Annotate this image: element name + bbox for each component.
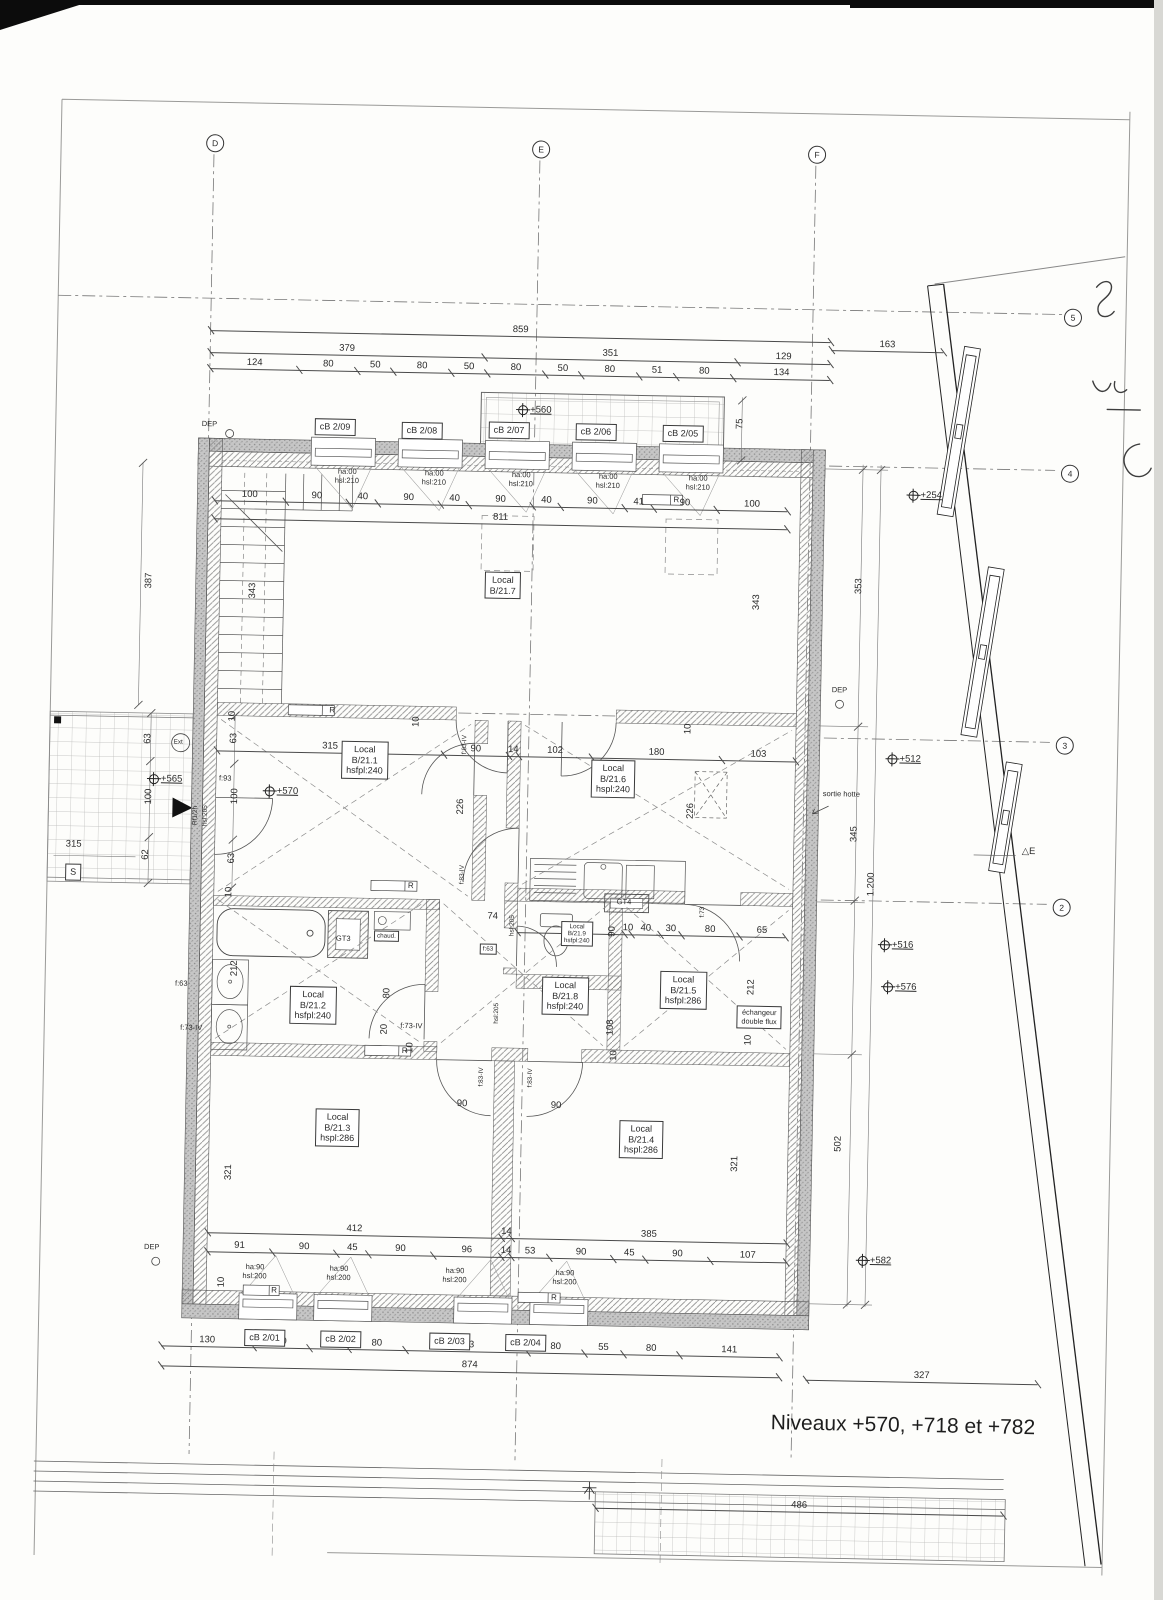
dim-90-swing-left: 90 [457, 1099, 468, 1109]
drawing-area: D E F 5 4 3 2 859 379351129 124805080508… [0, 0, 1163, 1600]
dim-20-door: 20 [378, 1007, 390, 1051]
level-icon [880, 940, 890, 950]
window-ann-hsl-1: hsl:210 [335, 477, 359, 486]
dim-value: 91 [234, 1240, 245, 1251]
dim-343-stair: 343 [247, 568, 259, 612]
dim-value: 874 [462, 1359, 478, 1370]
dim-value: 90 [587, 495, 598, 506]
handwriting-scribble [1091, 281, 1155, 476]
dim-value: 100 [242, 489, 258, 500]
dim-value: 107 [740, 1249, 756, 1260]
window-tag-cb205: cB 2/05 [663, 425, 704, 442]
dim-10-3: 10 [682, 707, 694, 751]
door-label-f93: f:93 [219, 774, 232, 783]
door-label-entry-hsl: hsl:205 [201, 794, 209, 838]
window-tag-cb202: cB 2/02 [320, 1330, 361, 1347]
level-icon [858, 1255, 868, 1265]
dim-value: 80 [550, 1341, 561, 1352]
heat-exchanger-label: échangeurdouble flux [736, 1005, 782, 1029]
door-label-entry-rating: Rf1/2h [191, 793, 199, 837]
room-label-b211: LocalB/21.1hsfpl:240 [341, 741, 388, 779]
dim-value: 80 [511, 362, 522, 373]
window-ann-hsl-b4: hsl:200 [552, 1278, 576, 1287]
dim-321-left: 321 [223, 1150, 235, 1194]
dim-value: 41 [633, 496, 644, 507]
dim-75: 75 [734, 402, 746, 446]
window-tag-cb201: cB 2/01 [244, 1329, 285, 1346]
level-marker-560: +560 [518, 404, 552, 416]
dim-value: 96 [461, 1244, 472, 1255]
dim-value: 80 [417, 360, 428, 371]
dim-353: 353 [853, 564, 865, 608]
dim-502: 502 [832, 1122, 844, 1166]
dim-value: 180 [649, 747, 665, 758]
dim-value: 90 [576, 1246, 587, 1257]
levels-note: Niveaux +570, +718 et +782 [770, 1411, 1035, 1440]
dim-10-4: 10 [223, 870, 235, 914]
dim-value: 40 [449, 493, 460, 504]
window-ann-hsl-4: hsl:210 [596, 482, 620, 491]
dim-value: 50 [370, 359, 381, 370]
dim-10-1: 10 [226, 694, 238, 738]
door-label-f73iv-1: f:73-IV [400, 1022, 422, 1031]
dim-value: 65 [757, 925, 768, 936]
dim-value: 315 [322, 740, 338, 751]
level-marker-576: +576 [883, 981, 917, 993]
terrace-left [47, 711, 193, 884]
dim-value: 53 [525, 1245, 536, 1256]
scanned-floor-plan-sheet: D E F 5 4 3 2 859 379351129 124805080508… [0, 0, 1163, 1600]
level-marker-582: +582 [858, 1255, 892, 1267]
door-label-hsl205-1: hsl:205 [508, 904, 516, 948]
dim-value: 141 [721, 1344, 737, 1355]
dim-value: 134 [773, 367, 789, 378]
dim-value: 90 [672, 1248, 683, 1259]
window-tag-cb207: cB 2/07 [489, 422, 530, 439]
dim-value: 412 [346, 1223, 362, 1234]
dim-value: 486 [791, 1500, 807, 1511]
dim-value: 40 [541, 495, 552, 506]
radiator-letter-4: R [402, 1047, 408, 1056]
level-icon [149, 774, 159, 784]
window-ann-hsl-b3: hsl:200 [442, 1276, 466, 1285]
dim-value: 130 [199, 1334, 215, 1345]
level-marker-254: +254 [908, 490, 942, 502]
dep-label-top: DEP [202, 420, 218, 429]
dim-value: 379 [339, 343, 355, 354]
level-icon [887, 754, 897, 764]
dim-62: 62 [140, 832, 152, 876]
room-label-b216: LocalB/21.6hspl:240 [591, 760, 636, 798]
window-tag-cb206: cB 2/06 [576, 423, 617, 440]
dim-value: 80 [371, 1337, 382, 1348]
east-marker: △E [1022, 846, 1036, 857]
dim-value: 90 [680, 497, 691, 508]
door-label-f83-4: f:83-IV [526, 1056, 534, 1100]
level-icon [518, 405, 528, 415]
dim-226-left: 226 [455, 784, 467, 828]
window-tag-cb208: cB 2/08 [402, 422, 443, 439]
door-label-f63-2: f:63 [175, 980, 188, 989]
room-label-b218: LocalB/21.8hsfpl:240 [542, 977, 589, 1015]
dim-value: 90 [311, 490, 322, 501]
window-ann-hsl-b2: hsl:200 [326, 1274, 350, 1283]
dim-90-kitchen: 90 [606, 909, 618, 953]
radiator-letter-5: R [271, 1287, 277, 1296]
dim-value: 80 [604, 364, 615, 375]
dim-value: 45 [347, 1242, 358, 1253]
dim-value: 103 [750, 749, 766, 760]
ext-label: Ext [174, 739, 183, 748]
window-ann-hsl-2: hsl:210 [422, 478, 446, 487]
dim-value: 124 [247, 357, 263, 368]
dim-10-6: 10 [608, 1033, 620, 1077]
dim-63-c: 63 [142, 716, 154, 760]
radiator-letter-1: R [329, 707, 335, 716]
dim-value: 55 [598, 1342, 609, 1353]
dim-value: 163 [879, 339, 895, 350]
dim-value: 129 [776, 351, 792, 362]
dim-10-2: 10 [410, 700, 422, 744]
dim-315-terrace: 315 [66, 839, 82, 849]
dim-value: 45 [624, 1247, 635, 1258]
dim-value: 100 [744, 498, 760, 509]
dim-212-left: 212 [228, 946, 240, 990]
window-tag-cb203: cB 2/03 [429, 1333, 470, 1350]
dim-74: 74 [487, 912, 498, 922]
dim-value: 351 [602, 348, 618, 359]
dim-value: 40 [640, 923, 651, 934]
dim-345: 345 [848, 812, 860, 856]
dim-value: 811 [493, 512, 508, 523]
level-icon [883, 982, 893, 992]
room-label-b212: LocalB/21.2hsfpl:240 [289, 986, 336, 1024]
dim-343-right: 343 [751, 580, 763, 624]
dim-90-swing-right: 90 [551, 1101, 562, 1111]
level-marker-512: +512 [887, 753, 921, 765]
dim-value: 90 [299, 1241, 310, 1252]
dim-value: 90 [403, 492, 414, 503]
room-label-b213: LocalB/21.3hspl:286 [315, 1108, 360, 1146]
dim-value: 859 [513, 324, 529, 335]
room-label-b219: LocalB/21.9hsfpl:240 [561, 921, 593, 947]
door-label-f73iv-2: f:73-IV [180, 1024, 202, 1033]
room-label-b214: LocalB/21.4hspl:286 [619, 1120, 664, 1158]
door-label-f63-boxed: f:63 [480, 943, 497, 954]
level-icon [908, 490, 918, 500]
hood-outlet-label: sortie hotte [823, 790, 860, 799]
dim-value: 90 [395, 1243, 406, 1254]
dim-value: 102 [547, 745, 563, 756]
door-label-f83-2: f:83-IV [458, 853, 466, 897]
water-heater-label: chaud. [374, 930, 399, 941]
level-icon [265, 786, 275, 796]
dim-1200: 1.200 [865, 862, 877, 906]
dim-226-right: 226 [685, 789, 697, 833]
room-label-b215: LocalB/21.5hsfpl:286 [660, 971, 707, 1009]
dim-value: 80 [323, 358, 334, 369]
dim-value: 50 [464, 361, 475, 372]
dim-chain-right-offset: 163 [831, 338, 943, 357]
window-tag-cb209: cB 2/09 [315, 418, 356, 435]
radiator-letter-2: R [673, 496, 679, 505]
level-marker-516: +516 [880, 939, 914, 951]
dim-212-right: 212 [745, 965, 757, 1009]
level-marker-565: +565 [149, 773, 183, 785]
door-label-f83-3: f:83-IV [477, 1055, 485, 1099]
dep-label-right: DEP [832, 686, 848, 695]
window-tag-cb204: cB 2/04 [505, 1334, 546, 1351]
dim-value: 30 [665, 923, 676, 934]
dim-value: 50 [557, 363, 568, 374]
sink-mark-box: S [65, 863, 81, 880]
dim-value: 80 [705, 924, 716, 935]
dep-label-bottom: DEP [144, 1243, 160, 1252]
door-label-f83-1: f:83-IV [461, 723, 469, 767]
gt3-label: GT3 [336, 935, 351, 944]
door-label-hsl205-2: hsl:205 [493, 991, 501, 1035]
dim-value: 80 [699, 366, 710, 377]
dim-value: 51 [652, 365, 663, 376]
dim-321-right: 321 [729, 1142, 741, 1186]
dim-value: 327 [914, 1370, 930, 1381]
gt4-label: GT4 [617, 898, 632, 907]
dim-387: 387 [143, 558, 155, 602]
radiator-letter-6: R [551, 1294, 557, 1303]
dim-value: 90 [470, 743, 481, 754]
room-label-b217: LocalB/21.7 [485, 571, 522, 599]
dim-value: 385 [641, 1229, 657, 1240]
door-label-f73: f:73 [699, 890, 707, 934]
window-ann-hsl-5: hsl:210 [686, 483, 710, 492]
dim-10-8: 10 [215, 1260, 227, 1304]
window-ann-hsl-3: hsl:210 [509, 480, 533, 489]
radiator-letter-3: R [408, 882, 414, 891]
dim-value: 80 [646, 1343, 657, 1354]
window-ann-hsl-b1: hsl:200 [242, 1272, 266, 1281]
dim-value: 90 [495, 494, 506, 505]
dim-value: 40 [357, 491, 368, 502]
level-marker-570: +570 [265, 785, 299, 797]
